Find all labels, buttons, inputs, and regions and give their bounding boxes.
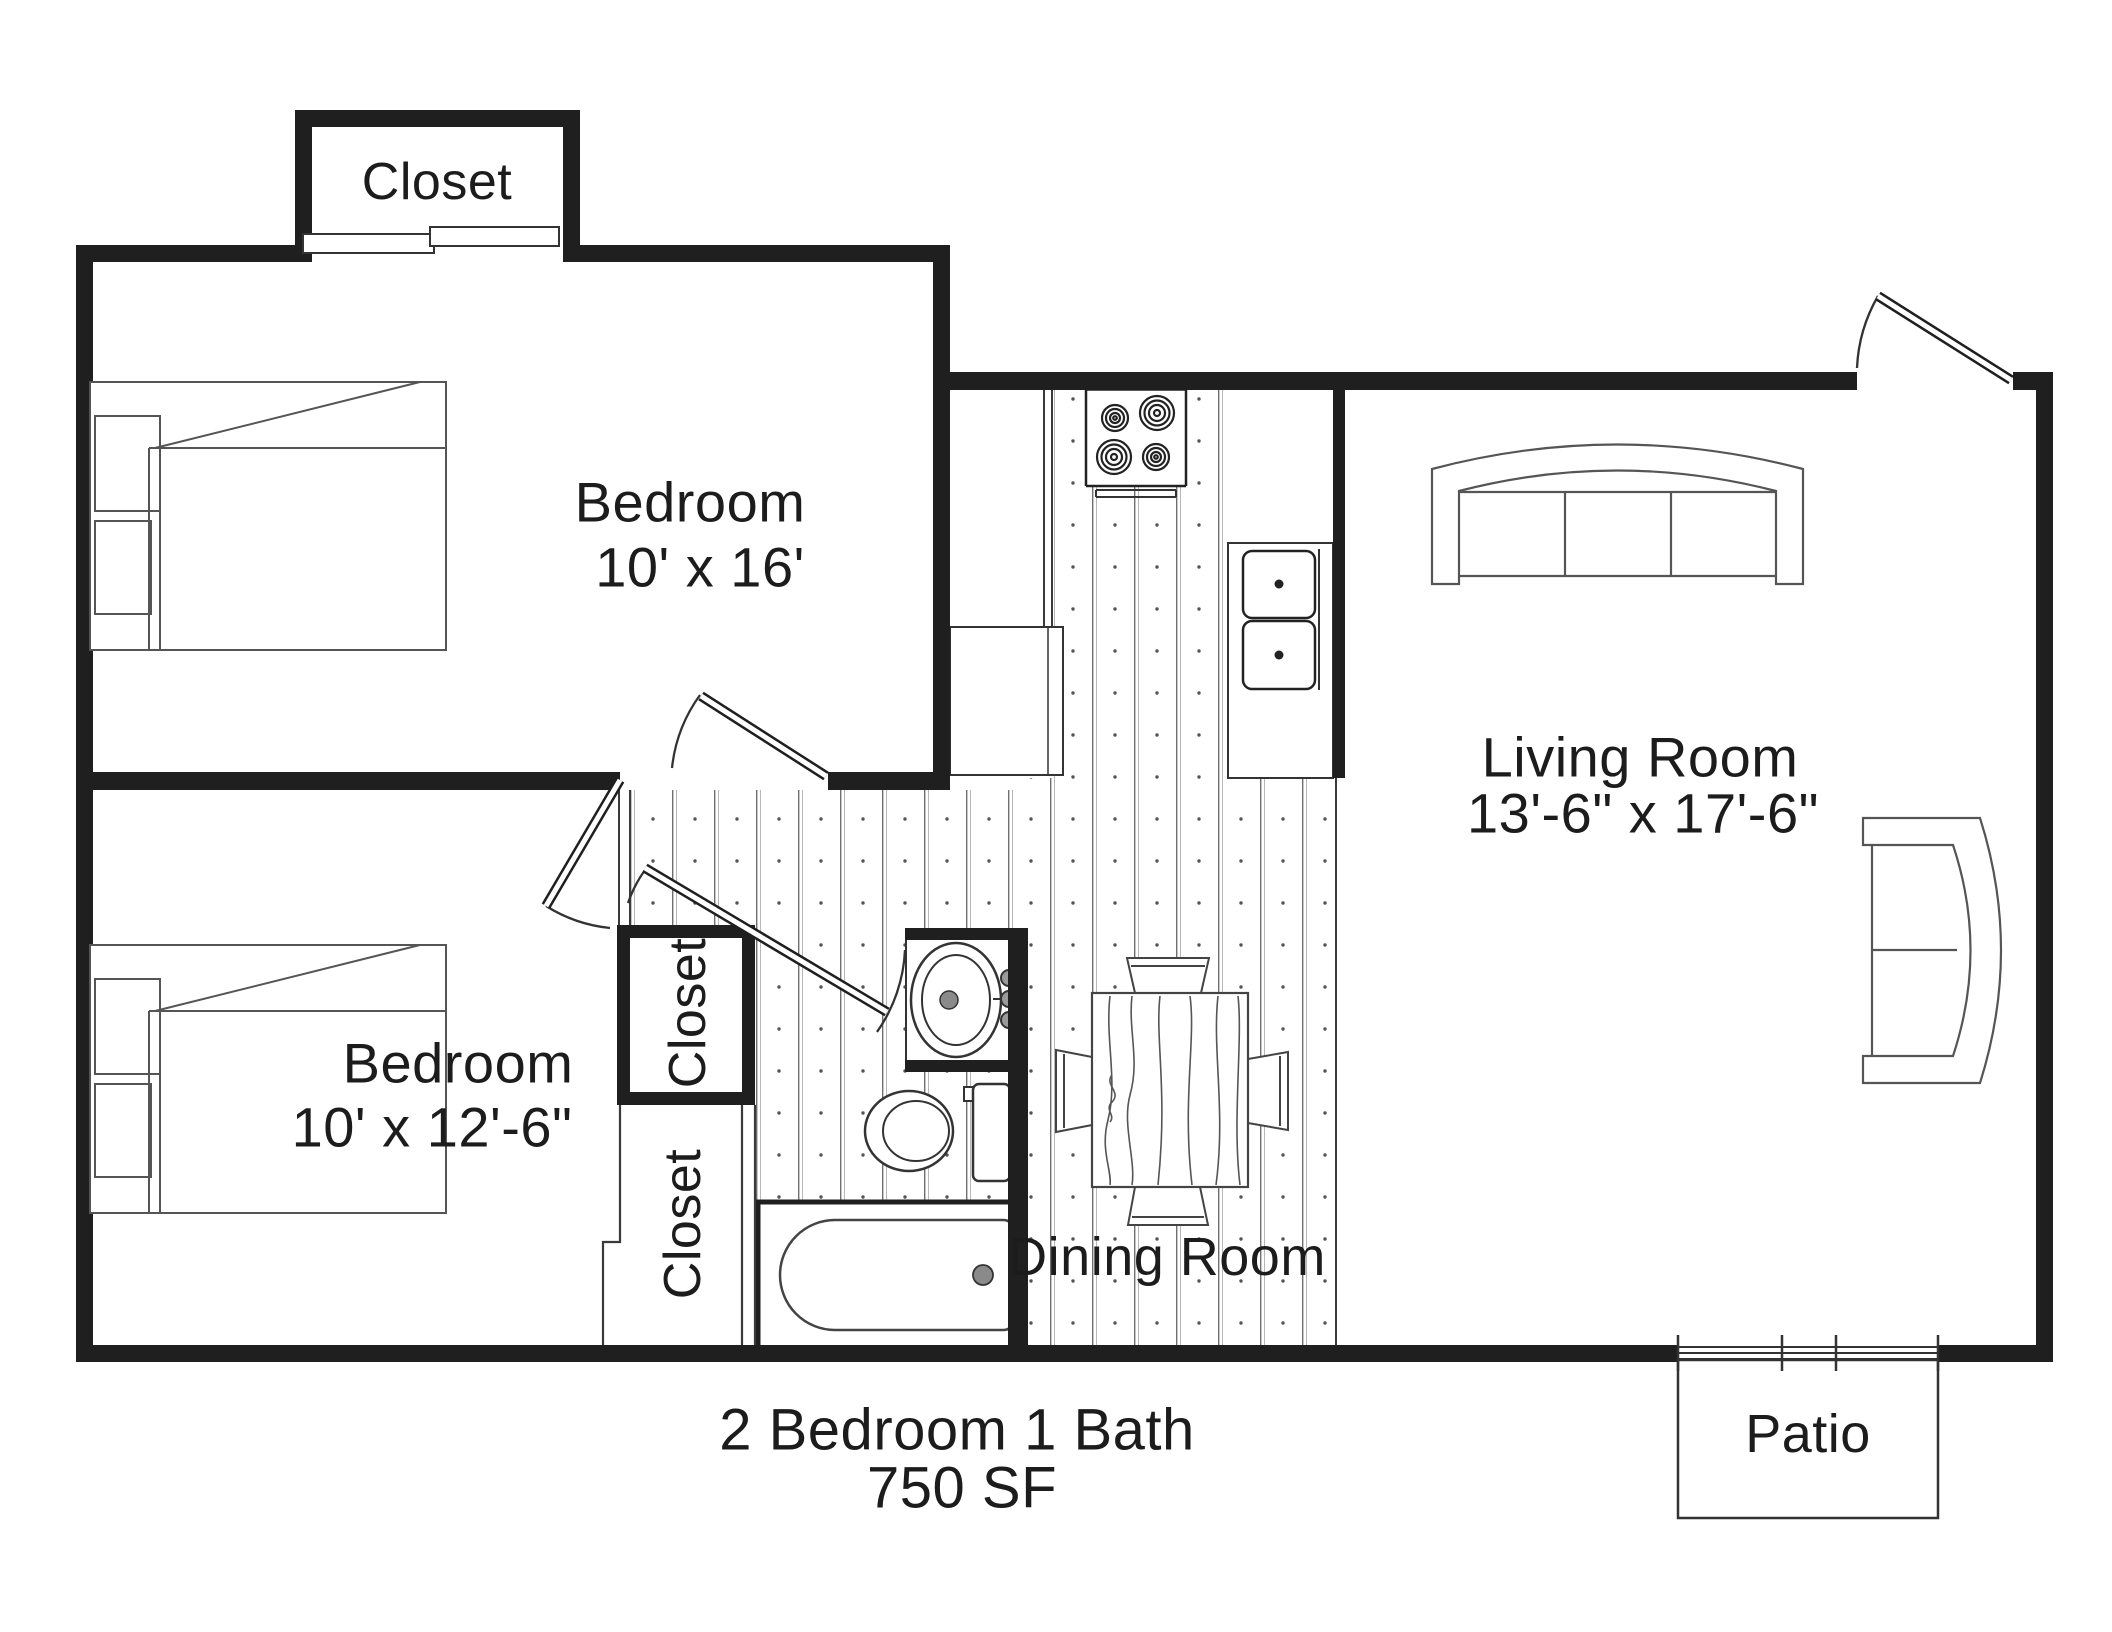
stove-icon (1086, 382, 1186, 497)
bedroom1-label: Bedroom (575, 470, 806, 535)
dining-room-label: Dining Room (1008, 1226, 1326, 1288)
sofa-icon (1432, 445, 1803, 585)
armchair-icon (1863, 818, 2001, 1083)
floor-plan-page: Closet Bedroom 10' x 16' Living Room 13'… (0, 0, 2112, 1632)
patio-label: Patio (1745, 1403, 1871, 1465)
living-room-dims: 13'-6" x 17'-6" (1467, 781, 1819, 846)
plan-title-line1: 2 Bedroom 1 Bath (719, 1397, 1195, 1464)
bathroom-sink-icon (905, 928, 1020, 1072)
bed1-icon (90, 382, 446, 650)
hall-closet-upper-label: Closet (658, 938, 718, 1088)
kitchen-sink-icon (1228, 543, 1333, 778)
kitchen-counter-block (950, 627, 1063, 775)
bedroom2-dims: 10' x 12'-6" (292, 1095, 573, 1160)
bedroom1-dims: 10' x 16' (595, 535, 805, 600)
closet-top-label: Closet (362, 152, 512, 212)
plan-title-line2: 750 SF (867, 1455, 1057, 1522)
hall-closet-lower-label: Closet (653, 1149, 713, 1299)
bedroom2-label: Bedroom (343, 1031, 574, 1096)
bathtub-icon (756, 1200, 1028, 1348)
